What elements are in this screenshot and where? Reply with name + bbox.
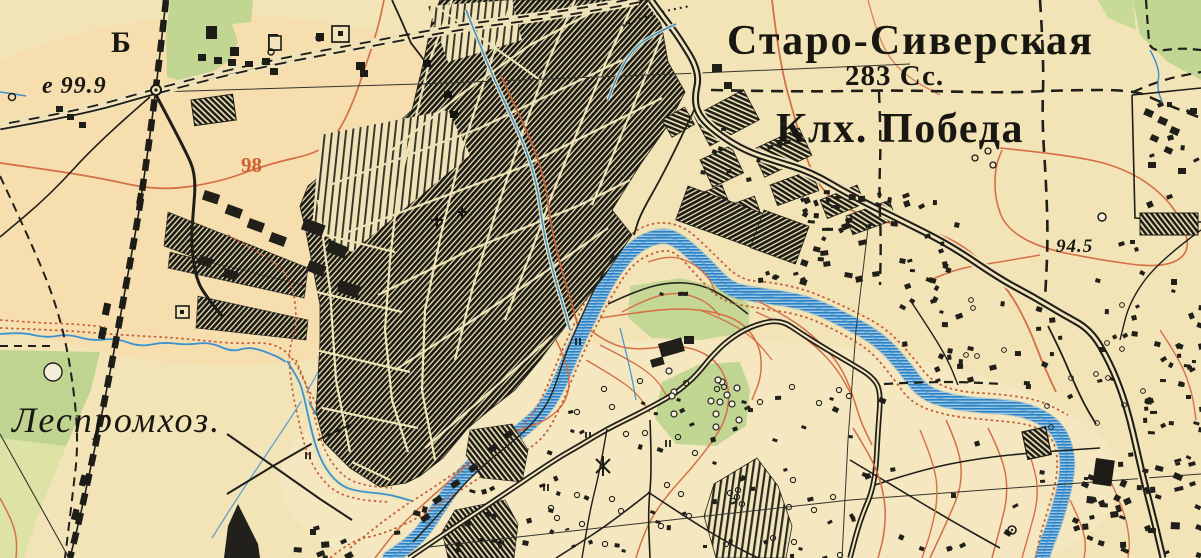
svg-text:Б: Б [111, 26, 131, 59]
svg-text:Старо-Сиверская: Старо-Сиверская [727, 18, 1094, 64]
svg-text:Клх. Победа: Клх. Победа [776, 106, 1024, 152]
svg-text:Леспромхоз.: Леспромхоз. [11, 400, 221, 440]
svg-text:283 Сс.: 283 Сс. [845, 60, 944, 92]
svg-text:98: 98 [241, 153, 262, 177]
svg-text:94.5: 94.5 [1056, 236, 1093, 257]
svg-text:е 99.9: е 99.9 [42, 73, 107, 99]
